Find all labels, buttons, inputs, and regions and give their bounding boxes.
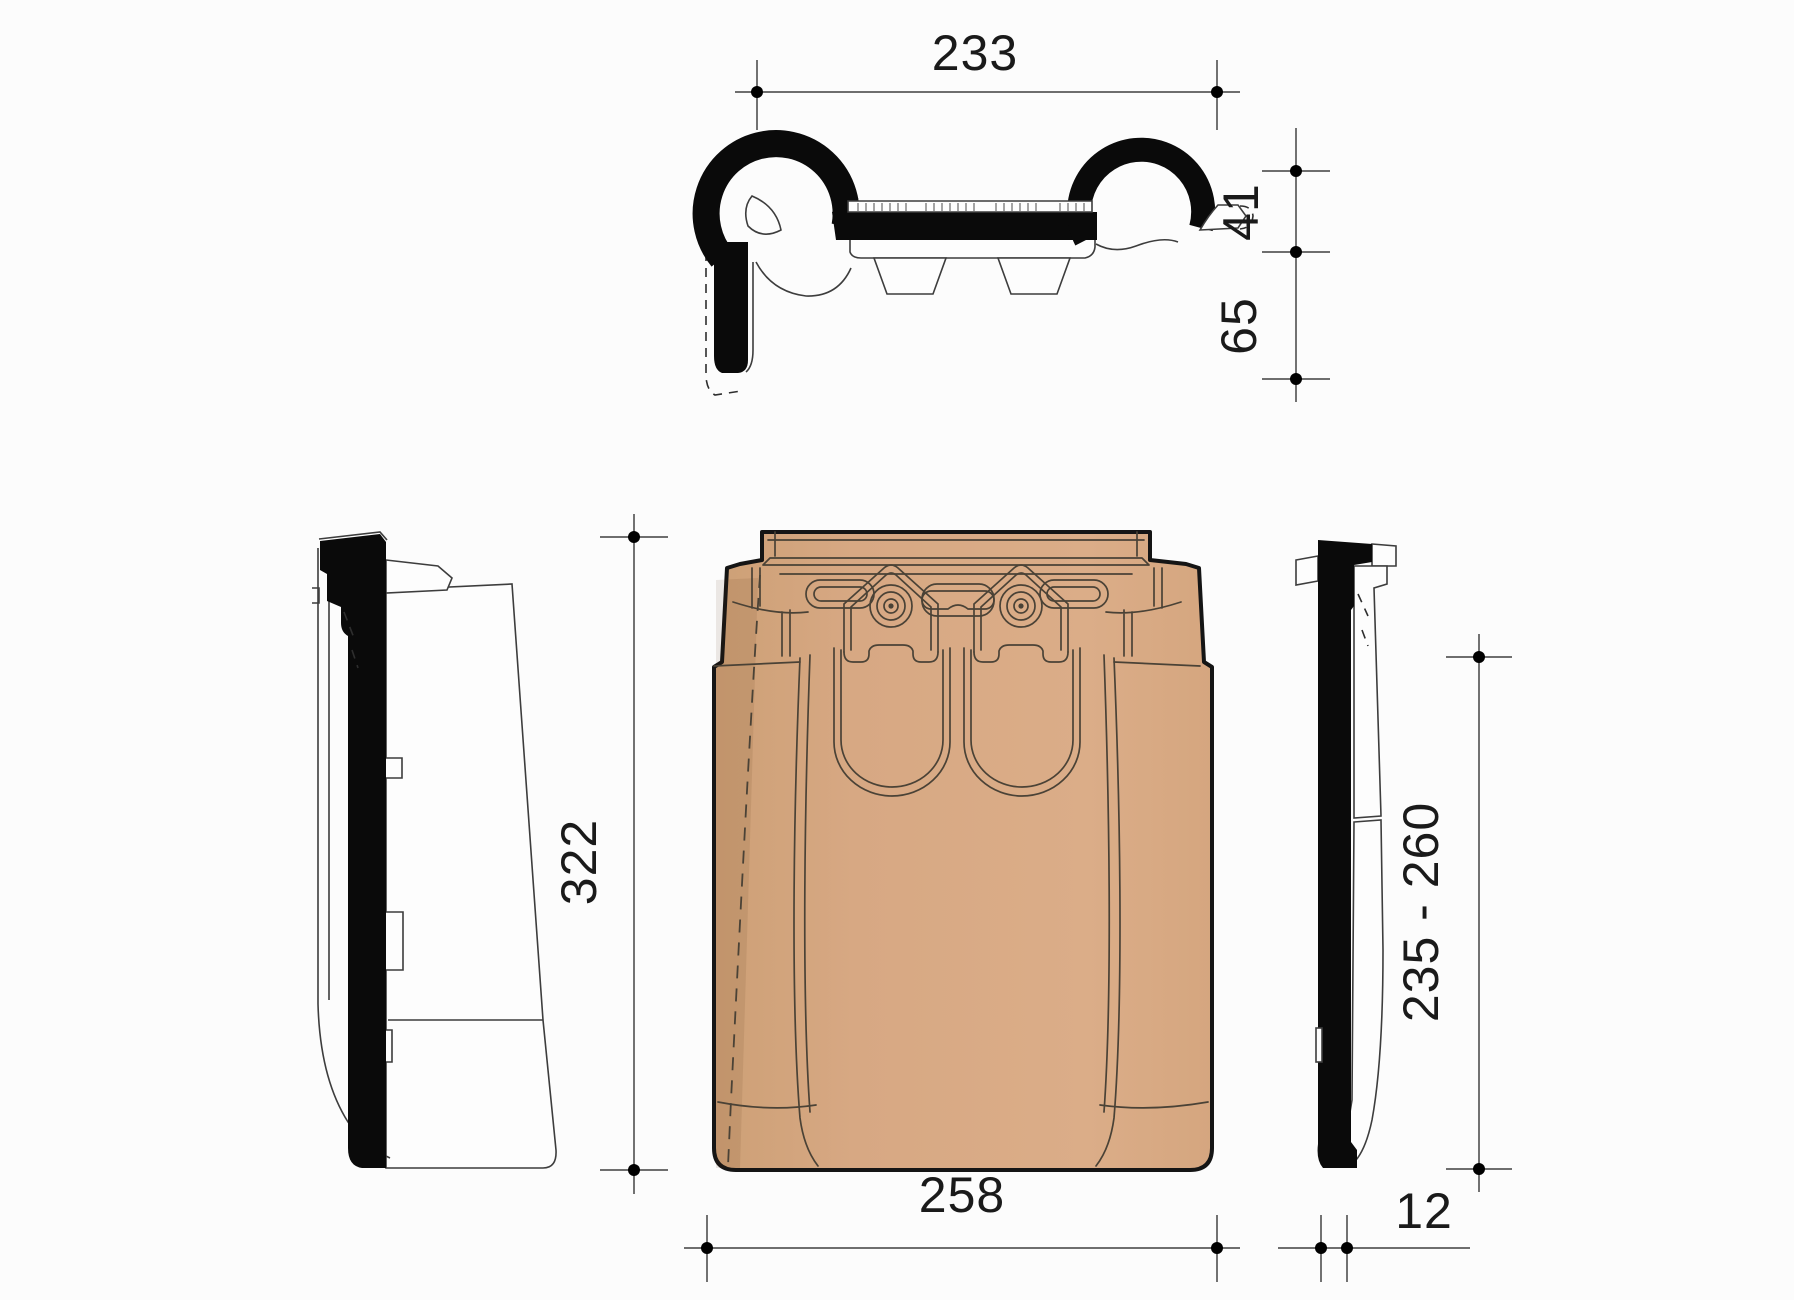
cross-section-roll-left-inner-curl [746, 196, 781, 234]
cross-section-roll-right [1079, 150, 1203, 240]
dimension-edge-thickness: 12 [1278, 1183, 1470, 1282]
right-side-upper-panel [1354, 566, 1387, 818]
dimension-top-width: 233 [735, 25, 1240, 130]
right-side-left-lug [1296, 556, 1318, 585]
right-side-top-step [1372, 544, 1396, 566]
cross-section-underside-contour-right [1096, 240, 1178, 250]
dimension-tile-length: 322 [551, 514, 668, 1194]
cross-section-top-strip [848, 201, 1092, 212]
dimension-label-tile-length: 322 [551, 819, 607, 905]
dimension-label-batten-range: 235 - 260 [1393, 802, 1449, 1022]
cross-section-leg-left [714, 242, 748, 373]
left-side-tab-middle [384, 912, 403, 970]
front-view-body [714, 532, 1212, 1170]
cross-section-band [845, 212, 1097, 240]
front-view [714, 532, 1212, 1170]
dimension-label-tile-width: 258 [919, 1167, 1005, 1223]
cross-section-underside-contour-left [756, 262, 851, 296]
left-side-view [312, 532, 556, 1168]
cross-section-roll-left [706, 144, 846, 258]
dimension-profile-heights: 41 65 [1211, 128, 1330, 402]
cross-section-lug-left [874, 258, 946, 294]
dimension-tile-width: 258 [684, 1167, 1240, 1282]
tile-technical-drawing: 233 41 65 322 258 12 [0, 0, 1794, 1300]
right-side-view [1296, 540, 1396, 1168]
left-side-tab-upper [384, 758, 402, 778]
left-side-top-lug [386, 560, 452, 593]
cross-section-underside [850, 238, 1095, 258]
dimension-label-edge-thickness: 12 [1395, 1183, 1453, 1239]
cross-section-lug-right [998, 258, 1070, 294]
tile-technical-drawing-page: 233 41 65 322 258 12 [0, 0, 1794, 1300]
dimension-label-head-depth: 65 [1211, 297, 1267, 355]
right-side-foot-notch [1316, 1028, 1322, 1062]
dimension-label-top-width: 233 [932, 25, 1018, 81]
left-side-slab [386, 584, 556, 1168]
dimension-batten-range: 235 - 260 [1393, 634, 1512, 1192]
left-side-black-edge [320, 534, 386, 1168]
cross-section-view [705, 144, 1253, 395]
dimension-label-roll-height: 41 [1213, 183, 1269, 241]
